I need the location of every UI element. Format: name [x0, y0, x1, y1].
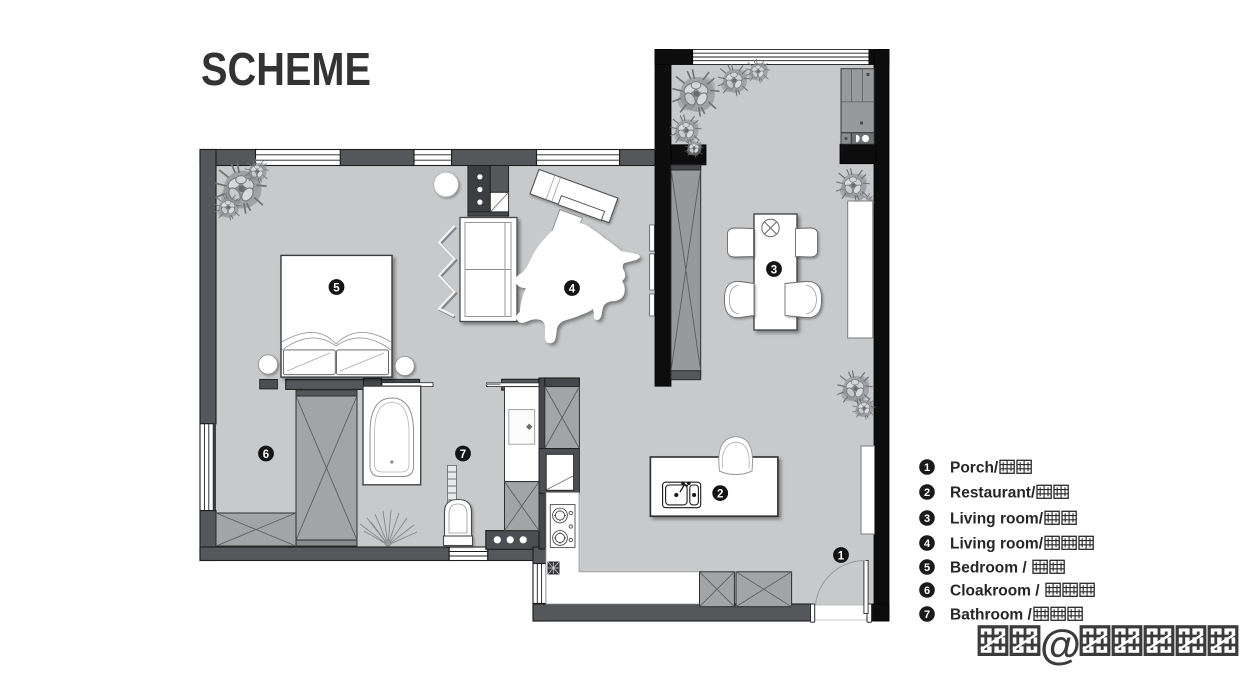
svg-text:Cloakroom /: Cloakroom /	[950, 583, 1040, 600]
svg-text:5: 5	[924, 562, 930, 574]
svg-text:@: @	[1040, 621, 1081, 668]
svg-text:6: 6	[263, 449, 269, 461]
svg-text:1: 1	[924, 462, 930, 474]
svg-text:1: 1	[838, 550, 845, 562]
svg-text:3: 3	[924, 513, 930, 525]
svg-text:3: 3	[771, 264, 777, 276]
svg-text:Bathroom /: Bathroom /	[950, 607, 1033, 624]
svg-text:Bedroom /: Bedroom /	[950, 560, 1027, 577]
svg-text:Restaurant/: Restaurant/	[950, 485, 1036, 502]
svg-text:Living room/: Living room/	[950, 536, 1044, 553]
svg-text:2: 2	[924, 487, 930, 499]
svg-text:Porch/: Porch/	[950, 460, 999, 477]
svg-text:SCHEME: SCHEME	[201, 43, 371, 95]
svg-text:6: 6	[924, 585, 930, 597]
svg-text:5: 5	[333, 282, 340, 294]
svg-text:Living room/: Living room/	[950, 511, 1044, 528]
svg-text:4: 4	[569, 283, 576, 295]
svg-text:7: 7	[460, 449, 466, 461]
svg-text:7: 7	[924, 609, 930, 621]
svg-text:4: 4	[924, 538, 931, 550]
svg-text:2: 2	[717, 488, 723, 500]
